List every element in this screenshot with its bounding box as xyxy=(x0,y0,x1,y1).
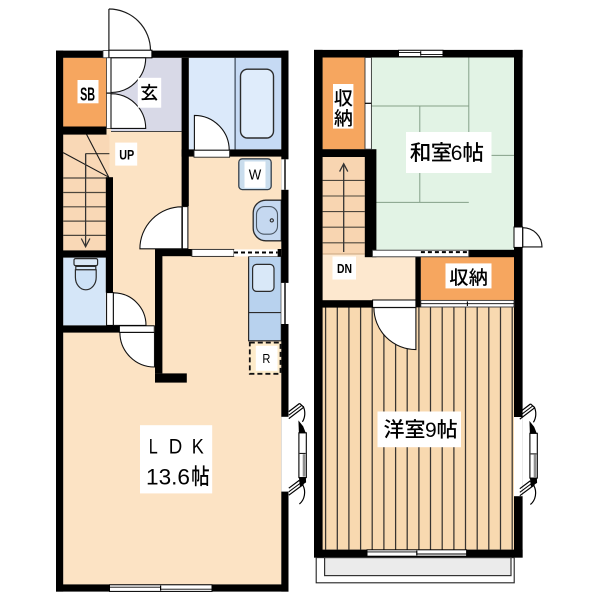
svg-text:D: D xyxy=(169,436,183,459)
svg-text:R: R xyxy=(262,351,270,366)
svg-text:6: 6 xyxy=(451,142,463,165)
svg-text:9: 9 xyxy=(425,419,437,442)
svg-text:SB: SB xyxy=(80,85,95,105)
svg-text:13.6: 13.6 xyxy=(146,464,190,489)
svg-text:W: W xyxy=(249,167,262,184)
svg-text:L: L xyxy=(149,436,158,459)
svg-text:UP: UP xyxy=(119,147,134,162)
svg-text:K: K xyxy=(192,436,204,459)
svg-text:DN: DN xyxy=(337,261,352,276)
